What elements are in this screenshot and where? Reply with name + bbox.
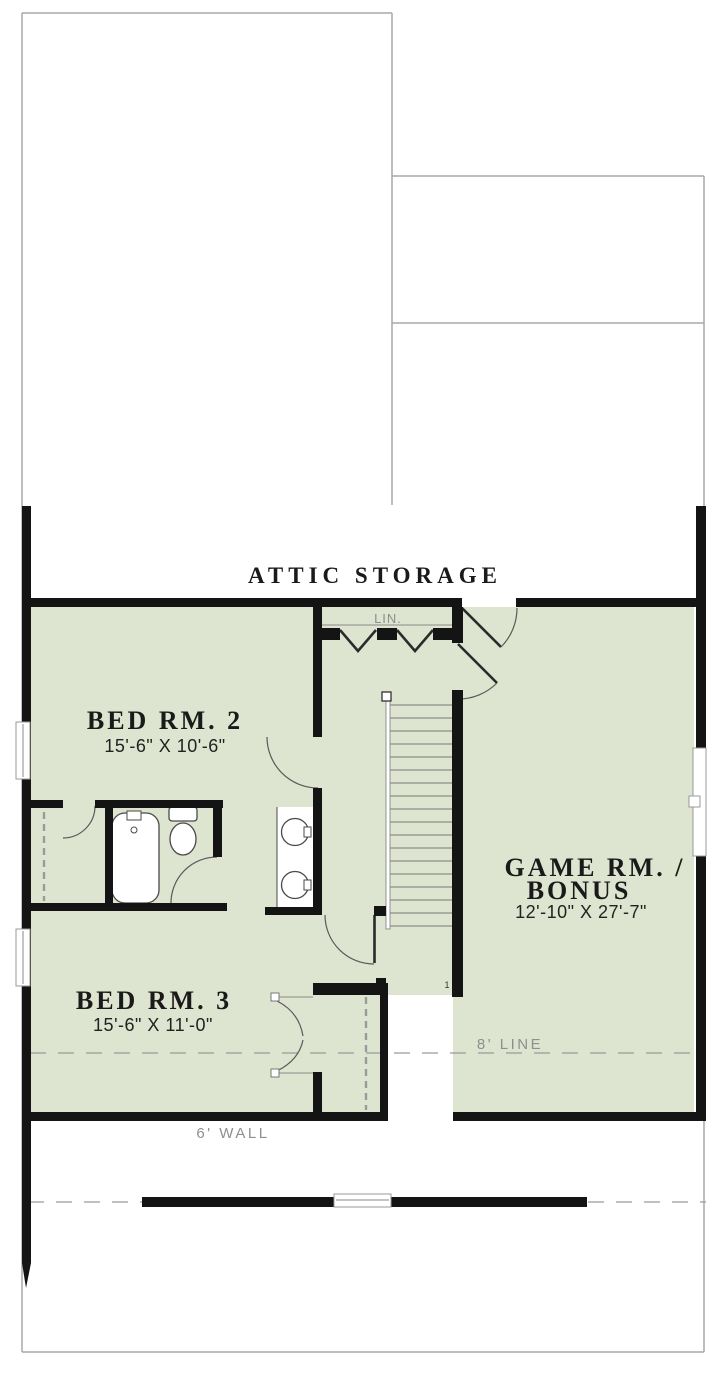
attic-storage-label: ATTIC STORAGE: [248, 563, 502, 588]
stair-newel: [382, 692, 391, 701]
bed3-label: BED RM. 3: [76, 986, 232, 1015]
stairwell-void: [388, 995, 453, 1121]
stair-note-label: 1: [444, 980, 449, 990]
bed2-dims: 15'-6" X 10'-6": [104, 736, 225, 756]
gameroom-label-line2: BONUS: [527, 876, 632, 905]
bed2-label: BED RM. 2: [87, 706, 243, 735]
six-foot-wall-label: 6' WALL: [196, 1125, 269, 1142]
bathtub: [112, 811, 159, 903]
linen-label: LIN.: [374, 611, 402, 626]
bed2-window: [16, 722, 30, 779]
toilet: [169, 807, 197, 855]
floor-plan: ATTIC STORAGE LIN. BED RM. 2 15'-6" X 10…: [0, 0, 725, 1383]
dormer-window: [334, 1194, 391, 1207]
bed3-dims: 15'-6" X 11'-0": [93, 1015, 213, 1035]
bed3-window: [16, 929, 30, 986]
eight-foot-line-label: 8' LINE: [477, 1036, 543, 1053]
gameroom-dims: 12'-10" X 27'-7": [515, 902, 647, 922]
stair-rail: [386, 697, 390, 929]
